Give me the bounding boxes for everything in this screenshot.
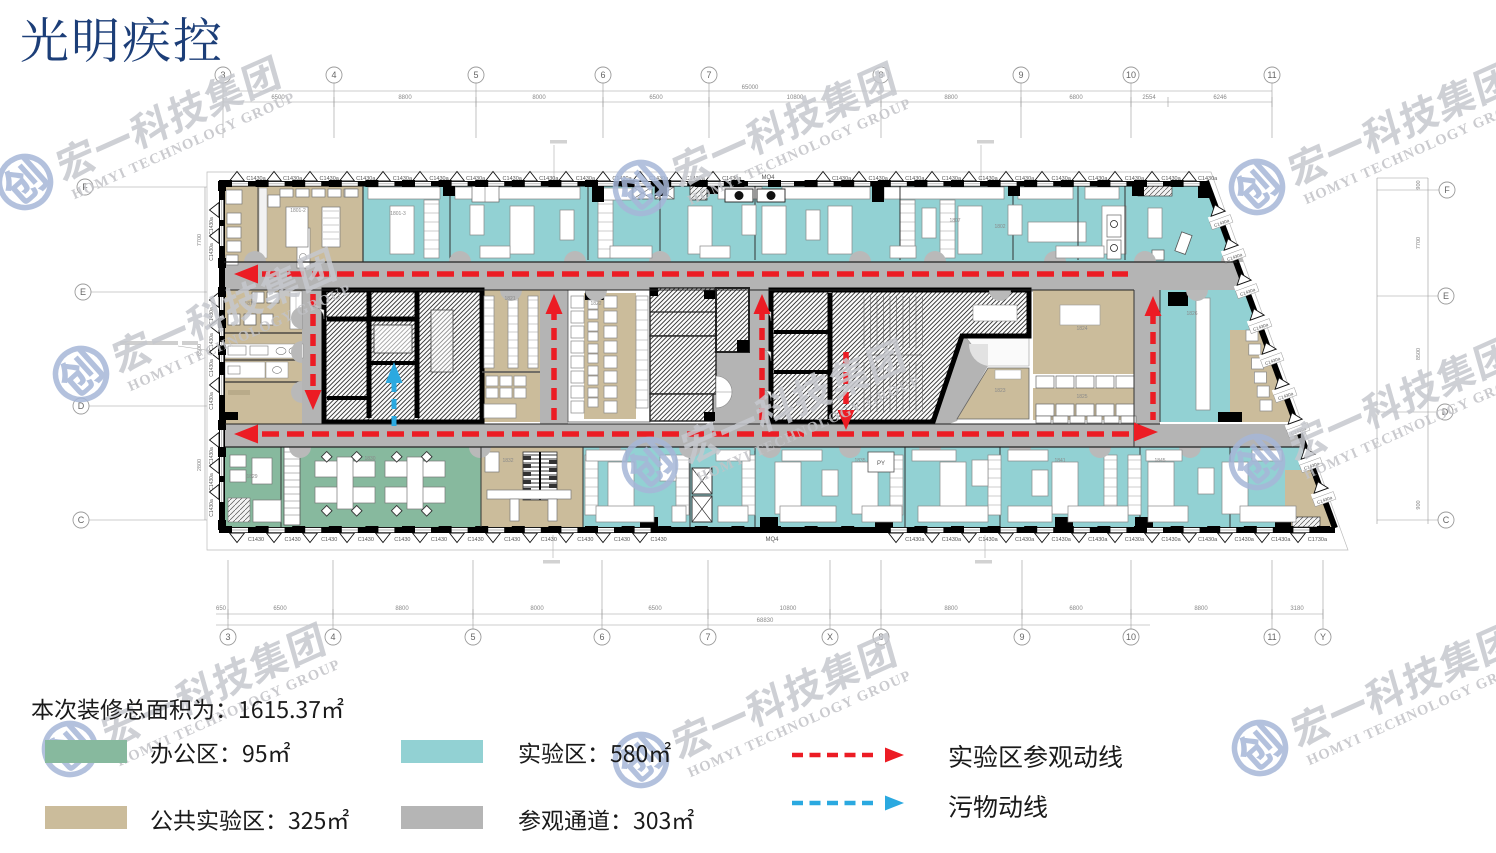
svg-text:1822: 1822 — [590, 301, 601, 307]
svg-text:6800: 6800 — [1069, 606, 1083, 612]
svg-text:1824: 1824 — [1076, 326, 1087, 332]
svg-text:6: 6 — [599, 632, 604, 642]
svg-text:E: E — [1443, 291, 1449, 301]
svg-text:8800: 8800 — [395, 606, 409, 612]
svg-text:10: 10 — [1126, 70, 1136, 80]
svg-text:X: X — [827, 632, 833, 642]
svg-text:1830: 1830 — [364, 456, 375, 462]
svg-text:6500: 6500 — [649, 95, 663, 101]
svg-text:9: 9 — [1019, 632, 1024, 642]
svg-text:C1430a: C1430a — [1271, 537, 1291, 543]
svg-text:7700: 7700 — [197, 234, 203, 246]
svg-text:65000: 65000 — [742, 85, 759, 91]
svg-text:4: 4 — [331, 70, 336, 80]
svg-text:1807: 1807 — [949, 218, 960, 224]
svg-text:C1730a: C1730a — [1308, 537, 1328, 543]
svg-text:C1430a: C1430a — [209, 499, 215, 517]
svg-text:8000: 8000 — [532, 95, 546, 101]
svg-text:68830: 68830 — [757, 618, 774, 624]
svg-text:Y: Y — [1320, 632, 1326, 642]
svg-text:8800: 8800 — [1194, 606, 1208, 612]
svg-text:C: C — [1443, 515, 1450, 525]
svg-text:6500: 6500 — [648, 606, 662, 612]
svg-text:10800: 10800 — [787, 95, 804, 101]
svg-text:10800: 10800 — [780, 606, 797, 612]
svg-text:2800: 2800 — [197, 459, 203, 471]
svg-text:1801-3: 1801-3 — [390, 211, 406, 217]
svg-text:C1430: C1430 — [541, 537, 557, 543]
svg-text:1845: 1845 — [1154, 458, 1165, 464]
svg-text:C1430a: C1430a — [1052, 537, 1072, 543]
svg-text:C1430: C1430 — [248, 537, 264, 543]
svg-text:8800: 8800 — [944, 606, 958, 612]
svg-text:C1430: C1430 — [577, 537, 593, 543]
svg-text:C1430: C1430 — [650, 537, 666, 543]
svg-text:1829: 1829 — [246, 474, 257, 480]
svg-text:C1430: C1430 — [321, 537, 337, 543]
svg-text:3: 3 — [225, 632, 230, 642]
svg-text:C1430a: C1430a — [978, 537, 998, 543]
svg-text:2554: 2554 — [1142, 95, 1156, 101]
svg-text:C1430a: C1430a — [209, 359, 215, 377]
svg-text:1825: 1825 — [1076, 394, 1087, 400]
svg-text:C1430a: C1430a — [209, 243, 215, 261]
svg-text:C1430: C1430 — [467, 537, 483, 543]
svg-text:7: 7 — [706, 70, 711, 80]
svg-text:10: 10 — [1126, 632, 1136, 642]
svg-text:MQ4: MQ4 — [765, 537, 779, 543]
svg-text:8500: 8500 — [1416, 348, 1422, 360]
svg-text:1841: 1841 — [1054, 458, 1065, 464]
svg-text:E: E — [80, 287, 86, 297]
svg-text:C1430a: C1430a — [1235, 537, 1255, 543]
svg-text:C1430a: C1430a — [942, 537, 962, 543]
svg-text:8000: 8000 — [530, 606, 544, 612]
svg-text:650: 650 — [216, 606, 227, 612]
svg-text:C1430a: C1430a — [209, 392, 215, 410]
svg-text:C1430: C1430 — [284, 537, 300, 543]
svg-text:4: 4 — [330, 632, 335, 642]
svg-text:C1430: C1430 — [504, 537, 520, 543]
svg-text:6500: 6500 — [273, 606, 287, 612]
svg-text:C1430a: C1430a — [1088, 537, 1108, 543]
svg-text:8800: 8800 — [944, 95, 958, 101]
svg-text:C1430: C1430 — [394, 537, 410, 543]
svg-text:6: 6 — [600, 70, 605, 80]
svg-text:9: 9 — [1018, 70, 1023, 80]
svg-text:PY: PY — [877, 461, 885, 467]
svg-text:C1430: C1430 — [431, 537, 447, 543]
svg-text:6800: 6800 — [1069, 95, 1083, 101]
svg-text:1802: 1802 — [994, 224, 1005, 230]
svg-text:1821: 1821 — [504, 296, 515, 302]
svg-text:C1430a: C1430a — [1198, 537, 1218, 543]
svg-text:F: F — [1444, 185, 1450, 195]
svg-text:7700: 7700 — [1416, 237, 1422, 249]
svg-text:C1430a: C1430a — [1161, 537, 1181, 543]
svg-text:1823: 1823 — [994, 388, 1005, 394]
svg-text:5: 5 — [473, 70, 478, 80]
svg-text:1801-2: 1801-2 — [290, 208, 306, 214]
svg-text:D: D — [78, 401, 85, 411]
svg-text:C1430: C1430 — [358, 537, 374, 543]
svg-text:11: 11 — [1267, 70, 1276, 80]
svg-text:3180: 3180 — [1290, 606, 1304, 612]
svg-text:1832: 1832 — [502, 458, 513, 464]
svg-text:1826: 1826 — [1186, 311, 1197, 317]
svg-text:900: 900 — [1416, 500, 1422, 509]
svg-text:8800: 8800 — [398, 95, 412, 101]
svg-text:C1430a: C1430a — [1125, 537, 1145, 543]
svg-text:C1430: C1430 — [614, 537, 630, 543]
svg-text:6246: 6246 — [1213, 95, 1227, 101]
svg-text:7: 7 — [705, 632, 710, 642]
svg-text:5: 5 — [470, 632, 475, 642]
svg-text:11: 11 — [1267, 632, 1276, 642]
svg-text:1835: 1835 — [854, 458, 865, 464]
svg-text:C1430a: C1430a — [905, 537, 925, 543]
svg-text:C1430a: C1430a — [1015, 537, 1035, 543]
svg-text:C: C — [78, 515, 85, 525]
svg-text:900: 900 — [1416, 180, 1422, 189]
